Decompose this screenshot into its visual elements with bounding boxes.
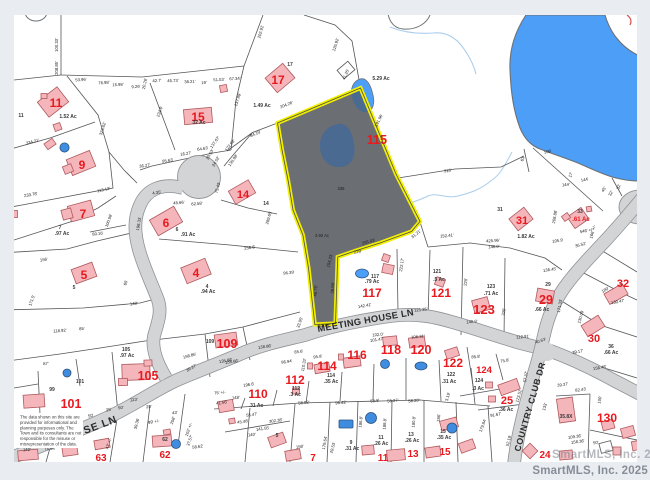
svg-text:15.98': 15.98' bbox=[112, 82, 124, 88]
svg-text:146.0': 146.0' bbox=[488, 244, 500, 250]
svg-text:25': 25' bbox=[106, 407, 112, 413]
svg-text:122: 122 bbox=[443, 356, 463, 370]
svg-text:1.49 Ac: 1.49 Ac bbox=[253, 103, 271, 109]
svg-text:1.82 Ac: 1.82 Ac bbox=[517, 234, 535, 240]
svg-text:30: 30 bbox=[588, 333, 600, 345]
svg-text:123: 123 bbox=[487, 284, 496, 290]
svg-text:35.8X: 35.8X bbox=[559, 414, 573, 420]
svg-text:186': 186' bbox=[436, 414, 442, 422]
svg-text:14: 14 bbox=[263, 201, 269, 207]
svg-text:.5 Ac: .5 Ac bbox=[433, 277, 445, 283]
svg-text:118: 118 bbox=[381, 343, 401, 357]
svg-text:.35 Ac: .35 Ac bbox=[324, 379, 339, 385]
svg-text:3.92 Ac: 3.92 Ac bbox=[315, 233, 329, 238]
svg-text:208.85': 208.85' bbox=[54, 61, 59, 75]
svg-text:11: 11 bbox=[50, 96, 63, 110]
svg-text:121: 121 bbox=[433, 269, 442, 275]
svg-text:67.34': 67.34' bbox=[229, 76, 241, 82]
svg-text:148': 148' bbox=[232, 395, 240, 401]
svg-text:43': 43' bbox=[172, 410, 178, 415]
svg-text:121: 121 bbox=[431, 286, 451, 300]
svg-text:124: 124 bbox=[476, 365, 493, 376]
svg-text:5.29 Ac: 5.29 Ac bbox=[372, 76, 390, 82]
svg-text:144': 144' bbox=[562, 182, 570, 188]
svg-text:31: 31 bbox=[497, 207, 503, 213]
svg-text:.31 Ac: .31 Ac bbox=[345, 446, 360, 452]
svg-text:96.42': 96.42' bbox=[335, 400, 347, 406]
svg-text:75' +/-: 75' +/- bbox=[214, 389, 227, 395]
svg-text:.94 Ac: .94 Ac bbox=[201, 289, 216, 295]
svg-text:.31 Ac: .31 Ac bbox=[249, 403, 264, 409]
svg-text:6: 6 bbox=[176, 227, 179, 233]
svg-text:1.52 Ac: 1.52 Ac bbox=[59, 114, 77, 120]
svg-text:124: 124 bbox=[475, 378, 484, 384]
svg-text:85': 85' bbox=[79, 326, 85, 331]
svg-text:responsible for the misuse or: responsible for the misuse or bbox=[20, 436, 76, 441]
svg-text:25: 25 bbox=[501, 395, 513, 407]
svg-text:13: 13 bbox=[407, 449, 419, 460]
svg-text:101: 101 bbox=[61, 397, 82, 411]
svg-text:24: 24 bbox=[539, 450, 551, 461]
svg-text:.35 Ac: .35 Ac bbox=[437, 435, 452, 441]
svg-text:188.8': 188.8' bbox=[382, 418, 388, 430]
svg-text:55.27': 55.27' bbox=[387, 398, 399, 404]
svg-text:114: 114 bbox=[317, 359, 337, 373]
svg-text:The data shown on this site ar: The data shown on this site are bbox=[20, 415, 80, 420]
svg-text:.26 Ac: .26 Ac bbox=[405, 438, 420, 444]
svg-text:425.96': 425.96' bbox=[486, 238, 500, 244]
svg-text:112: 112 bbox=[285, 373, 305, 387]
svg-text:33: 33 bbox=[577, 209, 583, 215]
svg-text:50': 50' bbox=[593, 440, 599, 446]
svg-text:117: 117 bbox=[362, 286, 382, 300]
svg-text:19': 19' bbox=[201, 80, 207, 85]
svg-text:122: 122 bbox=[447, 372, 456, 378]
svg-text:.91 Ac: .91 Ac bbox=[181, 232, 196, 238]
svg-text:50': 50' bbox=[88, 413, 94, 419]
svg-text:31: 31 bbox=[516, 215, 528, 227]
svg-text:110: 110 bbox=[248, 387, 268, 401]
svg-text:109: 109 bbox=[217, 337, 238, 351]
svg-text:.66 Ac: .66 Ac bbox=[535, 307, 550, 313]
svg-text:SmartMLS, Inc. 2025: SmartMLS, Inc. 2025 bbox=[532, 465, 648, 477]
svg-text:38.98': 38.98' bbox=[330, 282, 336, 294]
svg-text:planning purposes only. The: planning purposes only. The bbox=[20, 425, 74, 430]
svg-text:76.98': 76.98' bbox=[98, 80, 110, 86]
svg-text:123': 123' bbox=[130, 397, 138, 403]
svg-text:45.66': 45.66' bbox=[173, 200, 185, 206]
svg-text:180.8': 180.8' bbox=[411, 416, 417, 428]
svg-text:140.8': 140.8' bbox=[466, 319, 478, 325]
svg-text:100.33': 100.33' bbox=[54, 38, 59, 52]
svg-text:42.7': 42.7' bbox=[152, 78, 161, 83]
svg-text:85.8': 85.8' bbox=[471, 354, 481, 360]
svg-text:55.8': 55.8' bbox=[370, 398, 380, 404]
svg-text:120: 120 bbox=[411, 343, 432, 357]
svg-text:116: 116 bbox=[347, 348, 367, 362]
svg-text:36.21': 36.21' bbox=[184, 79, 196, 85]
svg-text:5: 5 bbox=[81, 268, 88, 282]
svg-text:29: 29 bbox=[545, 282, 551, 288]
svg-text:6: 6 bbox=[163, 216, 170, 230]
svg-text:.26 Ac: .26 Ac bbox=[374, 441, 389, 447]
svg-text:32: 32 bbox=[617, 278, 629, 290]
svg-text:99: 99 bbox=[49, 387, 55, 393]
svg-text:5: 5 bbox=[276, 433, 279, 439]
svg-text:9: 9 bbox=[79, 158, 86, 172]
svg-text:29: 29 bbox=[539, 293, 553, 307]
svg-text:.31 Ac: .31 Ac bbox=[442, 379, 457, 385]
svg-text:11: 11 bbox=[18, 113, 24, 119]
svg-text:25': 25' bbox=[146, 404, 152, 409]
svg-text:misrepresentation of the data.: misrepresentation of the data. bbox=[20, 442, 77, 447]
svg-text:45.73': 45.73' bbox=[167, 78, 179, 84]
svg-text:87': 87' bbox=[43, 361, 49, 366]
svg-text:17: 17 bbox=[287, 62, 293, 68]
svg-text:62: 62 bbox=[162, 437, 168, 443]
svg-text:32 Ac: 32 Ac bbox=[192, 120, 205, 126]
svg-text:46.75': 46.75' bbox=[313, 285, 319, 297]
svg-text:50': 50' bbox=[118, 405, 124, 410]
svg-text:SmartMLS, Inc. 2/2020: SmartMLS, Inc. 2/2020 bbox=[552, 449, 650, 461]
svg-text:53.96': 53.96' bbox=[75, 77, 87, 83]
svg-text:.3 Ac: .3 Ac bbox=[289, 392, 301, 398]
svg-text:7: 7 bbox=[80, 207, 87, 221]
svg-text:109: 109 bbox=[206, 339, 215, 345]
svg-text:provided for informational and: provided for informational and bbox=[20, 420, 77, 425]
svg-text:62: 62 bbox=[159, 450, 171, 461]
svg-text:115: 115 bbox=[367, 133, 387, 147]
svg-text:186.8': 186.8' bbox=[358, 416, 364, 428]
svg-text:51.53': 51.53' bbox=[213, 77, 225, 83]
svg-text:335: 335 bbox=[338, 186, 346, 191]
svg-text:58.02': 58.02' bbox=[298, 400, 310, 406]
svg-text:.97 Ac: .97 Ac bbox=[55, 231, 70, 237]
svg-text:130: 130 bbox=[597, 411, 617, 425]
svg-text:17: 17 bbox=[271, 73, 285, 87]
svg-text:105: 105 bbox=[138, 369, 159, 383]
svg-text:101: 101 bbox=[76, 379, 85, 385]
svg-text:.61 Ac: .61 Ac bbox=[572, 217, 590, 223]
svg-text:62.58': 62.58' bbox=[191, 201, 203, 207]
svg-text:15: 15 bbox=[439, 447, 451, 458]
svg-text:.71 Ac: .71 Ac bbox=[484, 291, 499, 297]
svg-text:.79 Ac: .79 Ac bbox=[365, 279, 380, 285]
svg-text:Town and its consultants are n: Town and its consultants are not bbox=[20, 431, 82, 436]
svg-text:4: 4 bbox=[193, 266, 200, 280]
svg-text:5: 5 bbox=[73, 285, 76, 291]
svg-text:140': 140' bbox=[248, 432, 256, 438]
svg-text:.97 Ac: .97 Ac bbox=[120, 353, 135, 359]
svg-text:.66 Ac: .66 Ac bbox=[604, 350, 619, 356]
svg-text:123: 123 bbox=[473, 302, 495, 317]
svg-text:58.20': 58.20' bbox=[408, 398, 420, 404]
svg-text:9.26': 9.26' bbox=[131, 84, 140, 89]
svg-text:220': 220' bbox=[463, 278, 469, 286]
svg-text:14: 14 bbox=[237, 189, 250, 201]
svg-text:.3 Ac: .3 Ac bbox=[472, 386, 484, 392]
